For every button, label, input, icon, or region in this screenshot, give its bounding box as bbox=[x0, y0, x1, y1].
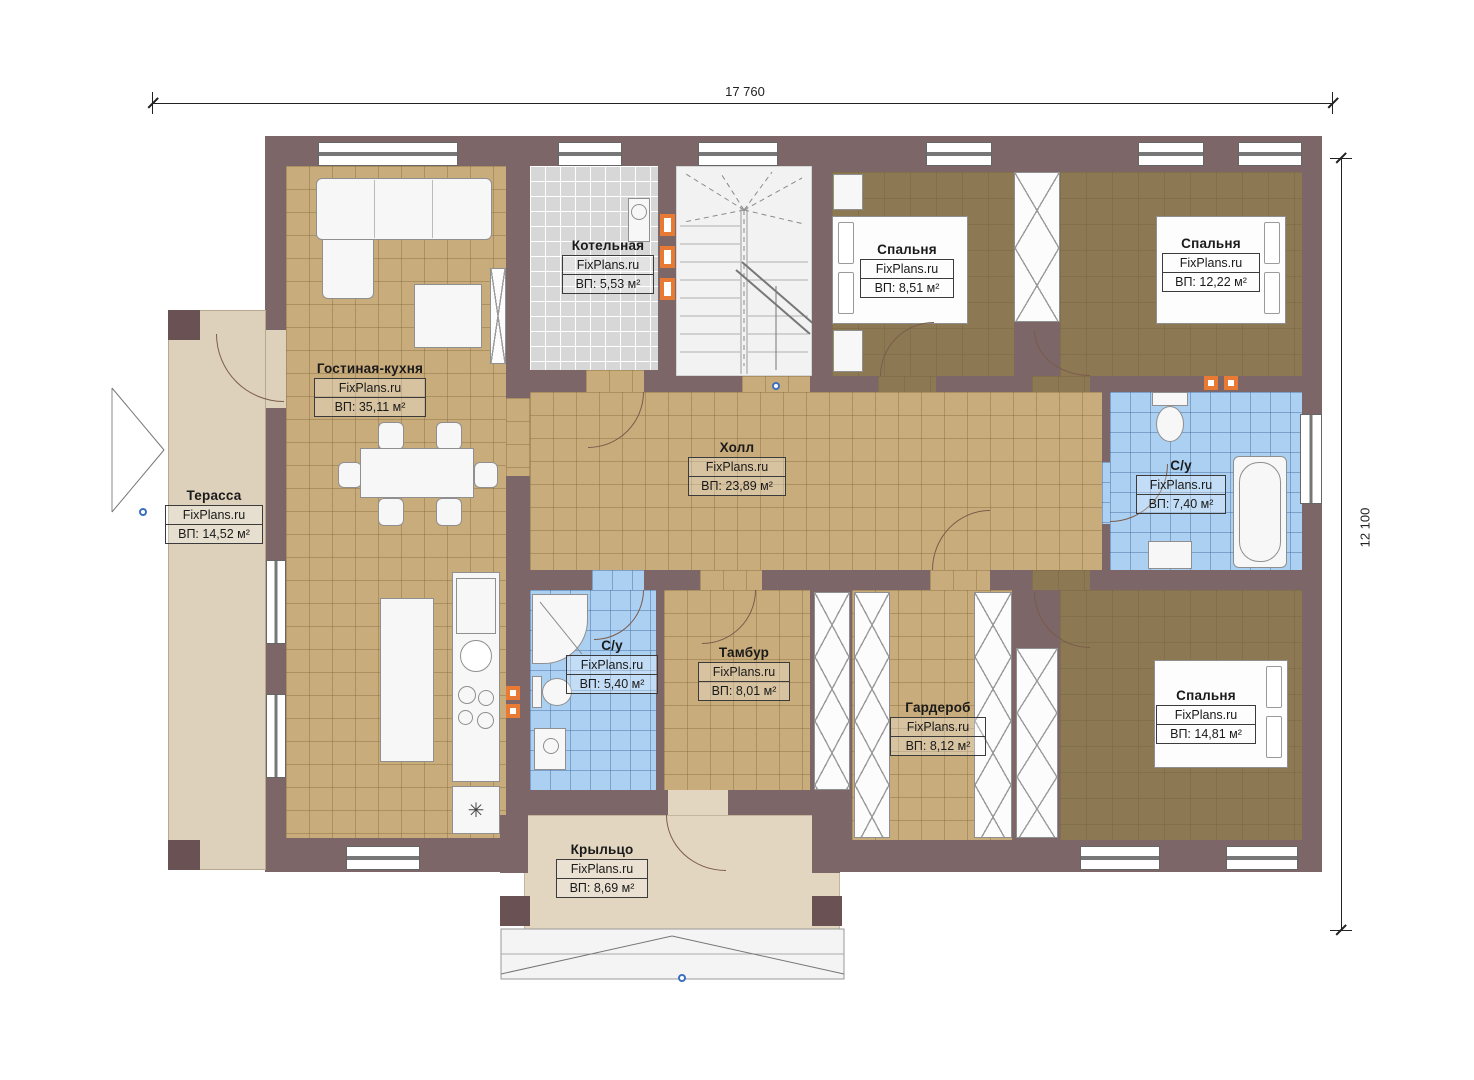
opening-bathroom2-door bbox=[592, 570, 644, 590]
opening-living-hall bbox=[506, 398, 530, 476]
vent-marker bbox=[506, 686, 520, 700]
marker-dot bbox=[139, 508, 147, 516]
room-label-boiler: Котельная FixPlans.ruВП: 5,53 м² bbox=[562, 238, 654, 294]
wardrobe-cabinet bbox=[1014, 172, 1060, 322]
stove-burner bbox=[458, 686, 476, 704]
dimension-right-line bbox=[1341, 158, 1342, 930]
room-label-bedroom-2: Спальня FixPlans.ruВП: 12,22 м² bbox=[1162, 236, 1260, 292]
pillow bbox=[1266, 666, 1282, 708]
window bbox=[346, 846, 420, 870]
marker-dot bbox=[678, 974, 686, 982]
window bbox=[1080, 846, 1160, 870]
room-label-hall: Холл FixPlans.ruВП: 23,89 м² bbox=[688, 440, 786, 496]
porch-wall-stub bbox=[500, 815, 528, 873]
sofa-seam bbox=[432, 180, 433, 238]
window bbox=[266, 560, 286, 644]
fridge-icon: ✳ bbox=[452, 786, 500, 834]
toilet-tank bbox=[532, 676, 542, 708]
chair bbox=[474, 462, 498, 488]
opening-bedroom2-door bbox=[1032, 376, 1090, 392]
washer-door bbox=[543, 738, 559, 754]
room-label-porch: Крыльцо FixPlans.ruВП: 8,69 м² bbox=[556, 842, 648, 898]
chair bbox=[436, 498, 462, 526]
dimension-right-label: 12 100 bbox=[1358, 483, 1373, 573]
room-label-tambur: Тамбур FixPlans.ruВП: 8,01 м² bbox=[698, 645, 790, 701]
kitchen-sink bbox=[460, 640, 492, 672]
vent-marker bbox=[660, 214, 675, 236]
room-label-bedroom-3: Спальня FixPlans.ruВП: 14,81 м² bbox=[1156, 688, 1256, 744]
chair bbox=[378, 498, 404, 526]
opening-bedroom3-door bbox=[1032, 570, 1090, 590]
pillow bbox=[838, 222, 854, 264]
vent-marker bbox=[660, 278, 675, 300]
porch-column bbox=[500, 896, 530, 926]
vent-marker bbox=[506, 704, 520, 718]
ladder-shelf bbox=[490, 268, 506, 364]
room-label-bathroom-1: С/у FixPlans.ruВП: 7,40 м² bbox=[1136, 458, 1226, 514]
sofa-seam bbox=[374, 180, 375, 238]
opening-bathroom1-door bbox=[1102, 462, 1110, 524]
dining-table bbox=[360, 448, 474, 498]
kitchen-drainer bbox=[456, 578, 496, 634]
dimension-top-line bbox=[152, 103, 1332, 104]
marker-dot bbox=[772, 382, 780, 390]
stove-burner bbox=[477, 712, 494, 729]
room-label-bedroom-1: Спальня FixPlans.ruВП: 8,51 м² bbox=[860, 242, 954, 298]
room-label-terrace: Терасса FixPlans.ruВП: 14,52 м² bbox=[165, 488, 263, 544]
window bbox=[926, 142, 992, 166]
stove-burner bbox=[478, 690, 494, 706]
porch-steps bbox=[500, 928, 845, 982]
bedroom3-cabinet bbox=[1016, 648, 1058, 838]
window bbox=[698, 142, 778, 166]
chair bbox=[378, 422, 404, 450]
vent-marker bbox=[1204, 376, 1218, 390]
vent-marker bbox=[1224, 376, 1238, 390]
window bbox=[266, 694, 286, 778]
chair bbox=[338, 462, 362, 488]
chair bbox=[436, 422, 462, 450]
window bbox=[1138, 142, 1204, 166]
window bbox=[1226, 846, 1298, 870]
pillow bbox=[1266, 716, 1282, 758]
toilet-tank bbox=[1152, 392, 1188, 406]
stove-burner bbox=[458, 710, 473, 725]
room-label-living-kitchen: Гостиная-кухня FixPlans.ruВП: 35,11 м² bbox=[314, 361, 426, 417]
window bbox=[318, 142, 458, 166]
window bbox=[1238, 142, 1302, 166]
porch-column bbox=[812, 896, 842, 926]
terrace-gable-symbol bbox=[108, 386, 168, 514]
sofa bbox=[316, 178, 492, 240]
garderob-cabinet-left bbox=[854, 592, 890, 838]
nightstand bbox=[833, 174, 863, 210]
opening-entrance-door bbox=[668, 790, 728, 815]
floor-plan-canvas: 17 760 12 100 bbox=[0, 0, 1474, 1080]
pillow bbox=[1264, 272, 1280, 314]
room-label-garderob: Гардероб FixPlans.ruВП: 8,12 м² bbox=[890, 700, 986, 756]
sofa-chaise bbox=[322, 239, 374, 299]
room-label-bathroom-2: С/у FixPlans.ruВП: 5,40 м² bbox=[566, 638, 658, 694]
vent-marker bbox=[660, 246, 675, 268]
porch-wall-stub bbox=[812, 815, 840, 873]
bathtub-inner bbox=[1239, 462, 1281, 562]
opening-bedroom1-door bbox=[878, 376, 936, 392]
opening-boiler-hall bbox=[586, 370, 644, 392]
coffee-table bbox=[414, 284, 482, 348]
opening-hall-tambur bbox=[700, 570, 762, 590]
staircase bbox=[676, 166, 812, 376]
window bbox=[558, 142, 622, 166]
window bbox=[1300, 414, 1322, 504]
toilet bbox=[1156, 406, 1184, 442]
sink bbox=[1148, 541, 1192, 569]
terrace-column bbox=[168, 840, 200, 870]
pillow bbox=[1264, 222, 1280, 264]
nightstand bbox=[833, 330, 863, 372]
pillow bbox=[838, 272, 854, 314]
boiler-dial bbox=[631, 204, 647, 220]
opening-hall-garderob bbox=[930, 570, 990, 590]
kitchen-island bbox=[380, 598, 434, 762]
terrace-column bbox=[168, 310, 200, 340]
tambur-cabinet bbox=[814, 592, 850, 790]
dimension-top-label: 17 760 bbox=[700, 84, 790, 99]
